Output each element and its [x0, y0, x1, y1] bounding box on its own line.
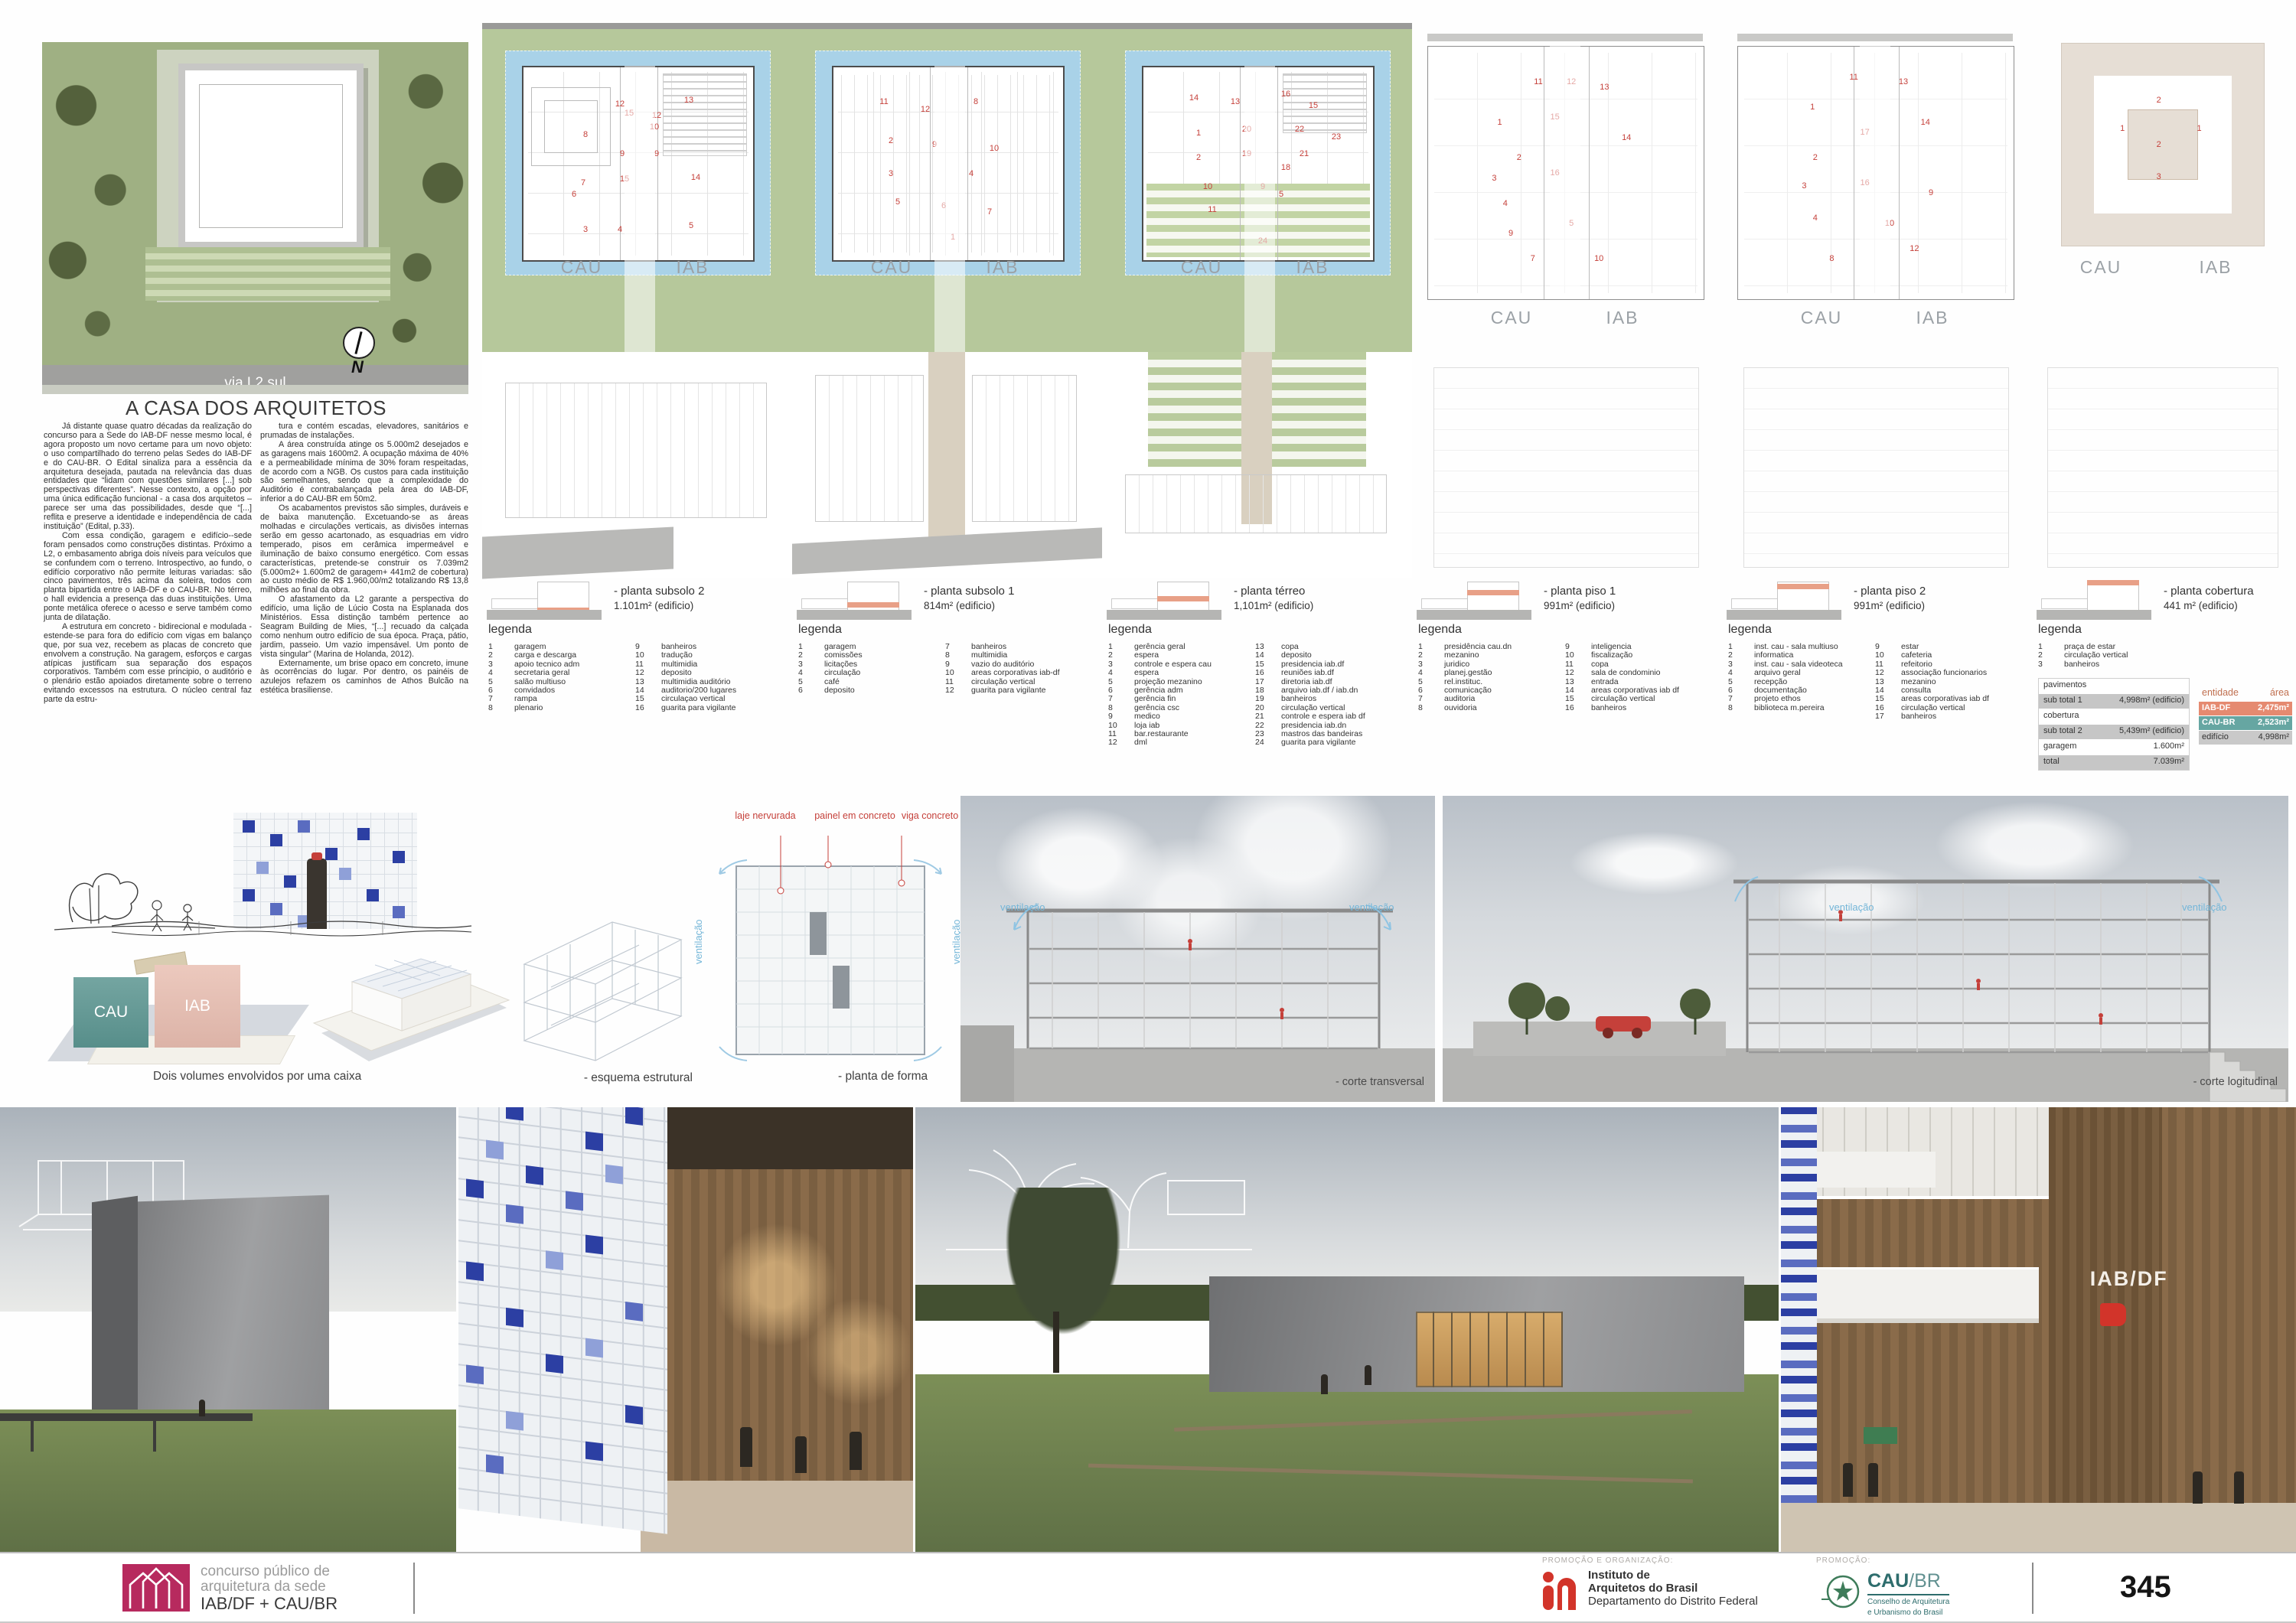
garage-outline	[2047, 367, 2278, 568]
plan-area: 1.101m² (edificio)	[614, 600, 704, 611]
ground-wedge	[482, 526, 673, 578]
plan-number-marker: 7	[987, 207, 992, 217]
legend-title: legenda	[2038, 623, 2082, 637]
legend-item: 10fiscalização	[1565, 651, 1714, 660]
plan-caption: - planta subsolo 2	[614, 585, 704, 598]
section-key-icon	[1417, 580, 1531, 620]
lawn	[0, 1410, 456, 1552]
plan-number-marker: 23	[1332, 132, 1341, 142]
corte-longitudinal: ventilação ventilação - corte logitudina…	[1443, 796, 2288, 1102]
legend-item: 7rampa	[488, 695, 638, 703]
section-drawing	[1443, 796, 2288, 1102]
structural-wireframe	[505, 888, 693, 1067]
plan-number-marker: 1	[2120, 124, 2125, 133]
plan-number-marker: 5	[895, 197, 900, 207]
azulejo-wall	[458, 1107, 667, 1534]
plan-column-piso2: 11131171421694381210 CAU IAB	[1722, 23, 2032, 578]
legend-title: legenda	[798, 623, 842, 637]
legend-item: 4planej.gestão	[1418, 669, 1567, 677]
legend-item: 5rel.instituc.	[1418, 678, 1567, 686]
plan-column-piso1: 111213115142316497105 CAU IAB	[1412, 23, 1722, 578]
legend-item: 5café	[798, 678, 947, 686]
massing-model	[306, 937, 513, 1067]
legend-item: 16circulação vertical	[1875, 704, 2024, 712]
building-shadow-face	[92, 1196, 138, 1439]
plan-caption: - planta piso 1	[1544, 585, 1616, 598]
competition-line3: IAB/DF + CAU/BR	[201, 1595, 338, 1613]
plan-area: 991m² (edificio)	[1544, 600, 1616, 611]
legend-item: 12associação funcionarios	[1875, 669, 2024, 677]
table-row: total7.039m²	[2039, 754, 2189, 770]
legend-item: 6gerência adm	[1108, 686, 1257, 695]
roof-core	[2128, 109, 2198, 180]
areas-table-rows: sub total 14,998m² (edificio)coberturasu…	[2039, 693, 2189, 770]
legend-item: 9estar	[1875, 643, 2024, 651]
entity-table-header: entidade área	[2199, 687, 2292, 701]
ventilation-label: ventilação	[693, 872, 704, 964]
legend-item: 6deposito	[798, 686, 947, 695]
legend-item: 3banheiros	[2038, 660, 2187, 669]
legend-block-terreo: - planta térreo 1,101m² (edificio) legen…	[1102, 580, 1412, 756]
site-below-plan	[1102, 352, 1412, 578]
legend-item: 3controle e espera cau	[1108, 660, 1257, 669]
footer-bar: concurso público de arquitetura da sede …	[0, 1552, 2296, 1623]
legend-item: 13copa	[1255, 643, 1404, 651]
road-edge	[1102, 23, 1412, 29]
green-sign	[1864, 1427, 1897, 1444]
legend-item: 1garagem	[798, 643, 947, 651]
corte2-caption: - corte logitudinal	[2193, 1076, 2278, 1088]
render-park-view	[915, 1107, 1779, 1552]
plan-number-marker: 3	[583, 225, 588, 234]
wing-label-iab: IAB	[1879, 308, 1986, 328]
paragraph: tura e contém escadas, elevadores, sanit…	[260, 422, 468, 441]
wing-label-cau: CAU	[1148, 257, 1255, 278]
competition-house-logo	[122, 1564, 190, 1612]
central-corridor	[1860, 46, 1890, 298]
plan-number-marker: 3	[1802, 181, 1806, 191]
presentation-board: via L2 sul N A CASA DOS ARQUITETOS Já di…	[0, 0, 2296, 1623]
legend-item: 21controle e espera iab df	[1255, 712, 1404, 721]
plan-number-marker: 1	[2197, 124, 2201, 133]
garden-rows	[145, 247, 390, 301]
article-column-2: tura e contém escadas, elevadores, sanit…	[260, 422, 468, 805]
wood-column	[2049, 1107, 2162, 1552]
legend-item: 4espera	[1108, 669, 1257, 677]
building-roof	[178, 64, 364, 249]
plan-number-marker: 2	[2157, 96, 2161, 105]
legend-item: 12deposito	[635, 669, 784, 677]
table-row: cobertura	[2039, 709, 2189, 724]
legend-item: 10areas corporativas iab-df	[945, 669, 1094, 677]
north-label: N	[351, 357, 364, 377]
plan-area: 814m² (edificio)	[924, 600, 1014, 611]
bridge-post	[153, 1421, 156, 1452]
person-silhouette	[850, 1432, 862, 1470]
section-key-icon	[1107, 580, 1221, 620]
site-below-plan	[792, 352, 1102, 578]
person-silhouette	[1843, 1463, 1853, 1497]
central-corridor	[934, 66, 965, 352]
entity-row-edificio: edifício4,998m²	[2199, 731, 2292, 745]
iab-line2: Arquitetos do Brasil	[1588, 1582, 1758, 1595]
wing-label-iab: IAB	[639, 257, 746, 278]
plan-caption: - planta piso 2	[1854, 585, 1926, 598]
plan-number-marker: 22	[1295, 125, 1304, 134]
plan-number-marker: 14	[1622, 133, 1631, 142]
legend-item: 13mezanino	[1875, 678, 2024, 686]
person-silhouette	[2234, 1471, 2244, 1504]
legend-item: 15circulação vertical	[1565, 695, 1714, 703]
legend-item: 7auditoria	[1418, 695, 1567, 703]
legend-item: 9medico	[1108, 712, 1257, 721]
article-column-1: Já distante quase quatro décadas da real…	[44, 422, 252, 805]
paragraph: A área construída atinge os 5.000m2 dese…	[260, 441, 468, 504]
legend-item: 4arquivo geral	[1728, 669, 1877, 677]
auditorium-seats	[663, 73, 747, 156]
plan-number-marker: 12	[921, 105, 930, 114]
plan-number-marker: 2	[1517, 153, 1521, 162]
promo-org-label: PROMOÇÃO E ORGANIZAÇÃO:	[1542, 1556, 1673, 1565]
legend-item: 9banheiros	[635, 643, 784, 651]
footer-divider	[413, 1563, 415, 1614]
plan-number-marker: 4	[1503, 199, 1508, 208]
paragraph: Os acabamentos previstos são simples, du…	[260, 504, 468, 595]
legend-item: 3inst. cau - sala videoteca	[1728, 660, 1877, 669]
legend-list: 9estar10cafeteria11refeitorio12associaçã…	[1875, 643, 2024, 722]
plan-number-marker: 10	[990, 144, 999, 153]
plan-caption: - planta térreo	[1234, 585, 1313, 598]
legend-title: legenda	[1418, 623, 1462, 637]
wing-label-cau: CAU	[2055, 257, 2147, 278]
forma-caption: - planta de forma	[838, 1070, 960, 1084]
road-edge	[792, 23, 1102, 29]
legend-item: 1gerência geral	[1108, 643, 1257, 651]
legend-title: legenda	[488, 623, 532, 637]
legend-item: 6documentação	[1728, 686, 1877, 695]
legend-item: 4circulação	[798, 669, 947, 677]
corte1-caption: - corte transversal	[1336, 1076, 1424, 1088]
render-exterior-bridge	[0, 1107, 456, 1552]
lawn	[915, 1374, 1779, 1552]
plan-number-marker: 8	[583, 130, 588, 139]
plan-number-marker: 14	[1189, 93, 1199, 103]
plan-number-marker: 10	[1203, 182, 1212, 191]
plan-number-marker: 12	[1910, 244, 1919, 253]
iab-volume-label: IAB	[184, 997, 210, 1015]
wing-label-iab: IAB	[1259, 257, 1366, 278]
corte-transversal: ventilação ventilação - corte transversa…	[960, 796, 1435, 1102]
legend-list: 1praça de estar2circulação vertical3banh…	[2038, 643, 2187, 669]
legend-item: 6convidados	[488, 686, 638, 695]
legend-list: 1gerência geral2espera3controle e espera…	[1108, 643, 1257, 748]
legend-item: 1inst. cau - sala multiuso	[1728, 643, 1877, 651]
legend-block-piso2: - planta piso 2 991m² (edificio) legenda…	[1722, 580, 2032, 756]
legend-title: legenda	[1728, 623, 1772, 637]
legend-list: 9banheiros10tradução11multimidia12deposi…	[635, 643, 784, 712]
cau-name: CAU/BR	[1867, 1570, 1949, 1595]
plan-area: 991m² (edificio)	[1854, 600, 1926, 611]
legend-item: 12guarita para vigilante	[945, 686, 1094, 695]
legend-item: 9inteligencia	[1565, 643, 1714, 651]
section-key-icon	[1727, 580, 1841, 620]
legend-block-piso1: - planta piso 1 991m² (edificio) legenda…	[1412, 580, 1722, 756]
entity-area-table: entidade área IAB-DF2,475m² CAU-BR2,523m…	[2199, 687, 2292, 745]
wing-label-cau: CAU	[838, 257, 945, 278]
compass-needle	[354, 331, 362, 354]
viga-label: viga concreto	[888, 811, 972, 822]
page-number: 345	[2120, 1570, 2171, 1605]
entity-row-caubr: CAU-BR2,523m²	[2199, 716, 2292, 730]
opening-mullions	[1416, 1312, 1563, 1387]
painel-label: painel em concreto	[813, 811, 897, 822]
parking-drawing	[1125, 474, 1387, 533]
plan-number-marker: 9	[1929, 188, 1933, 197]
plan-number-marker: 2	[2157, 140, 2161, 149]
legend-item: 11bar.restaurante	[1108, 730, 1257, 738]
plan-number-marker: 3	[1492, 174, 1496, 183]
iab-credit-block: Instituto de Arquitetos do Brasil Depart…	[1588, 1569, 1758, 1608]
legend-item: 3juridico	[1418, 660, 1567, 669]
entity-row-iabdf: IAB-DF2,475m²	[2199, 702, 2292, 715]
legend-list: 9inteligencia10fiscalização11copa12sala …	[1565, 643, 1714, 712]
plan-caption: - planta cobertura	[2164, 585, 2254, 598]
iab-line1: Instituto de	[1588, 1569, 1758, 1582]
legend-list: 1inst. cau - sala multiuso2informatica3i…	[1728, 643, 1877, 712]
azulejo-wall-photo	[233, 813, 417, 929]
plan-column-cobertura: 12312 CAU IAB	[2032, 23, 2292, 578]
render-tile-facade-interior	[458, 1107, 913, 1552]
legend-list: 13copa14deposito15presidencia iab.df16re…	[1255, 643, 1404, 748]
volumes-diagram: CAU IAB	[61, 945, 314, 1067]
plan-number-marker: 11	[1534, 77, 1542, 86]
road-band: via L2 sul	[42, 365, 468, 385]
legend-title: legenda	[1108, 623, 1152, 637]
iab-logo	[1542, 1570, 1579, 1610]
plan-number-marker: 14	[1921, 118, 1930, 127]
plan-number-marker: 11	[1849, 73, 1857, 82]
legend-item: 1presidência cau.dn	[1418, 643, 1567, 651]
plan-number-marker: 7	[1531, 254, 1535, 263]
legend-item: 17banheiros	[1875, 712, 2024, 721]
plan-number-marker: 21	[1300, 149, 1309, 158]
plan-number-marker: 14	[691, 173, 700, 182]
plan-column-subsolo2: 8151213121099147615345 CAU IAB	[482, 23, 792, 578]
person-silhouette	[795, 1436, 807, 1473]
wing-label-iab: IAB	[2170, 257, 2262, 278]
plan-number-marker: 8	[974, 97, 978, 106]
plan-number-marker: 13	[1231, 97, 1240, 106]
person-silhouette	[740, 1427, 752, 1467]
building-courtyard	[199, 84, 343, 228]
ventilation-label: ventilação	[1349, 901, 1394, 913]
wing-label-iab: IAB	[1569, 308, 1676, 328]
person-silhouette	[1365, 1365, 1371, 1385]
paragraph: O afastamento da L2 garante a perspectiv…	[260, 595, 468, 659]
plan-number-marker: 18	[1281, 163, 1290, 172]
ventilation-label: ventilação	[1829, 901, 1874, 913]
plan-number-marker: 3	[2157, 172, 2161, 181]
legend-list: 7banheiros8multimidia9vazio do auditório…	[945, 643, 1094, 695]
paragraph: Já distante quase quatro décadas da real…	[44, 422, 252, 532]
person-silhouette	[2193, 1471, 2203, 1504]
ventilation-label: ventilação	[1000, 901, 1045, 913]
laje-label: laje nervurada	[723, 811, 807, 822]
walkway	[928, 352, 965, 555]
ceiling-band	[641, 1107, 913, 1169]
legend-item: 16banheiros	[1565, 704, 1714, 712]
legend-item: 5salão multiuso	[488, 678, 638, 686]
plan-number-marker: 13	[684, 96, 693, 105]
sidewalk-band	[42, 385, 468, 394]
legend-list: 1garagem2carga e descarga3apoio tecnico …	[488, 643, 638, 712]
paragraph: Externamente, um brise opaco em concreto…	[260, 660, 468, 696]
legend-item: 8gerência csc	[1108, 704, 1257, 712]
legend-item: 11multimidia	[635, 660, 784, 669]
legend-item: 16reuniões iab.df	[1255, 669, 1404, 677]
cau-br-emblem-icon	[1821, 1572, 1861, 1612]
iab-line3: Departamento do Distrito Federal	[1588, 1595, 1758, 1608]
azulejo-strip	[1781, 1107, 1817, 1552]
plan-number-marker: 11	[1208, 205, 1216, 214]
areas-table-header: pavimentos	[2039, 679, 2189, 693]
site-aerial-photo: via L2 sul N	[42, 42, 468, 394]
plan-area: 1,101m² (edificio)	[1234, 600, 1313, 611]
site-below-plan	[482, 352, 792, 578]
road-edge	[482, 23, 792, 29]
legend-item: 8plenario	[488, 704, 638, 712]
cau-sub2: e Urbanismo do Brasil	[1867, 1608, 1949, 1617]
plan-number-marker: 5	[1279, 190, 1283, 199]
ventilation-label: ventilação	[2182, 901, 2227, 913]
competition-line1: concurso público de	[201, 1564, 338, 1579]
access-bridge	[0, 1413, 253, 1421]
person-silhouette	[1868, 1463, 1878, 1497]
legend-item: 2comissões	[798, 651, 947, 660]
table-row: sub total 25,439m² (edificio)	[2039, 724, 2189, 739]
plan-number-marker: 2	[889, 136, 893, 145]
cau-volume-label: CAU	[94, 1003, 128, 1022]
plan-area: 441 m² (edificio)	[2164, 600, 2254, 611]
legend-block-cobertura: - planta cobertura 441 m² (edificio) leg…	[2032, 580, 2296, 764]
legend-block-subsolo2: - planta subsolo 2 1.101m² (edificio) le…	[482, 580, 792, 756]
plan-number-marker: 12	[615, 99, 625, 109]
plan-number-marker: 1	[1196, 129, 1201, 138]
parking-drawing	[815, 375, 924, 522]
legend-item: 8biblioteca m.pereira	[1728, 704, 1877, 712]
plan-number-marker: 15	[1309, 101, 1318, 110]
plan-number-marker: 3	[889, 169, 893, 178]
wing-label-cau: CAU	[528, 257, 635, 278]
legend-item: 10cafeteria	[1875, 651, 2024, 660]
plan-number-marker: 11	[879, 97, 888, 106]
plan-column-terreo: 141316151202221921181011952324 CAU IAB	[1102, 23, 1412, 578]
plan-number-marker: 10	[1594, 254, 1603, 263]
plan-number-marker: 7	[581, 178, 585, 187]
legend-item: 7gerência fin	[1108, 695, 1257, 703]
legend-block-subsolo1: - planta subsolo 1 814m² (edificio) lege…	[792, 580, 1102, 756]
iab-volume: IAB	[155, 965, 240, 1048]
garage-outline	[1743, 367, 2009, 568]
plan-number-marker: 5	[689, 221, 693, 230]
promo-label: PROMOÇÃO:	[1816, 1556, 1870, 1565]
legend-item: 10tradução	[635, 651, 784, 660]
wing-label-cau: CAU	[1768, 308, 1875, 328]
legend-item: 7banheiros	[945, 643, 1094, 651]
plan-number-marker: 9	[1508, 229, 1513, 238]
plan-number-marker: 13	[1899, 77, 1908, 86]
plan-number-marker: 6	[572, 190, 576, 199]
plan-number-marker: 8	[1829, 254, 1834, 263]
legend-list: 1presidência cau.dn2mezanino3juridico4pl…	[1418, 643, 1567, 712]
wing-label-iab: IAB	[949, 257, 1056, 278]
plan-number-marker: 1	[1810, 103, 1815, 112]
legend-item: 24guarita para vigilante	[1255, 738, 1404, 747]
render-interior-atrium: IAB/DF	[1781, 1107, 2296, 1552]
plan-number-marker: 1	[1498, 118, 1502, 127]
legend-item: 4secretaria geral	[488, 669, 638, 677]
plan-number-marker: 4	[618, 225, 622, 234]
plan-number-marker: 13	[1600, 83, 1609, 92]
plan-number-marker: 4	[1813, 213, 1818, 223]
garage-outline	[1433, 367, 1699, 568]
table-row: garagem1.600m²	[2039, 739, 2189, 754]
legend-item: 12sala de condominio	[1565, 669, 1714, 677]
red-cap	[311, 852, 322, 860]
esquema-caption: - esquema estrutural	[563, 1071, 693, 1085]
bridge-post	[31, 1421, 34, 1452]
legend-item: 6comunicação	[1418, 686, 1567, 695]
cau-credit-block: CAU/BR Conselho de Arquitetura e Urbanis…	[1867, 1570, 1949, 1617]
section-key-icon	[487, 580, 602, 620]
competition-line2: arquitetura da sede	[201, 1579, 338, 1595]
legend-list: 1garagem2comissões3licitações4circulação…	[798, 643, 947, 695]
parking-drawing	[505, 383, 767, 518]
plan-column-subsolo1: 111282910345617 CAU IAB	[792, 23, 1102, 578]
person-silhouette	[1321, 1374, 1328, 1394]
floor	[1781, 1503, 2296, 1552]
table-row: sub total 14,998m² (edificio)	[2039, 693, 2189, 709]
wing-label-cau: CAU	[1458, 308, 1565, 328]
page-title: A CASA DOS ARQUITETOS	[44, 396, 468, 420]
paragraph: A estrutura em concreto - bidirecional e…	[44, 623, 252, 705]
north-compass-icon	[343, 327, 375, 359]
legend-item: 3licitações	[798, 660, 947, 669]
person-silhouette	[199, 1400, 205, 1416]
white-bridge	[1781, 1267, 2039, 1323]
section-key-icon	[797, 580, 912, 620]
roof-plan-drawing: 12312	[2061, 43, 2265, 246]
areas-table: pavimentos sub total 14,998m² (edificio)…	[2038, 678, 2190, 771]
road-edge	[1427, 34, 1703, 41]
large-tree	[1002, 1188, 1124, 1341]
tree-trunk	[1053, 1312, 1059, 1373]
central-corridor	[625, 66, 655, 352]
formwork-plan	[704, 836, 957, 1065]
plan-number-marker: 2	[1813, 153, 1818, 162]
plan-number-marker: 16	[1281, 90, 1290, 99]
legend-item: 18arquivo iab.df / iab.dn	[1255, 686, 1404, 695]
floor-band	[641, 1481, 913, 1552]
paragraph: Com essa condição, garagem e edifício--s…	[44, 532, 252, 623]
area-col-header: área	[2270, 687, 2289, 698]
volumes-caption: Dois volumes envolvidos por uma caixa	[153, 1070, 367, 1084]
central-corridor	[1550, 46, 1580, 298]
plan-caption: - planta subsolo 1	[924, 585, 1014, 598]
legend-item: 12dml	[1108, 738, 1257, 747]
legend-item: 2mezanino	[1418, 651, 1567, 660]
blue-tiles	[243, 820, 255, 833]
